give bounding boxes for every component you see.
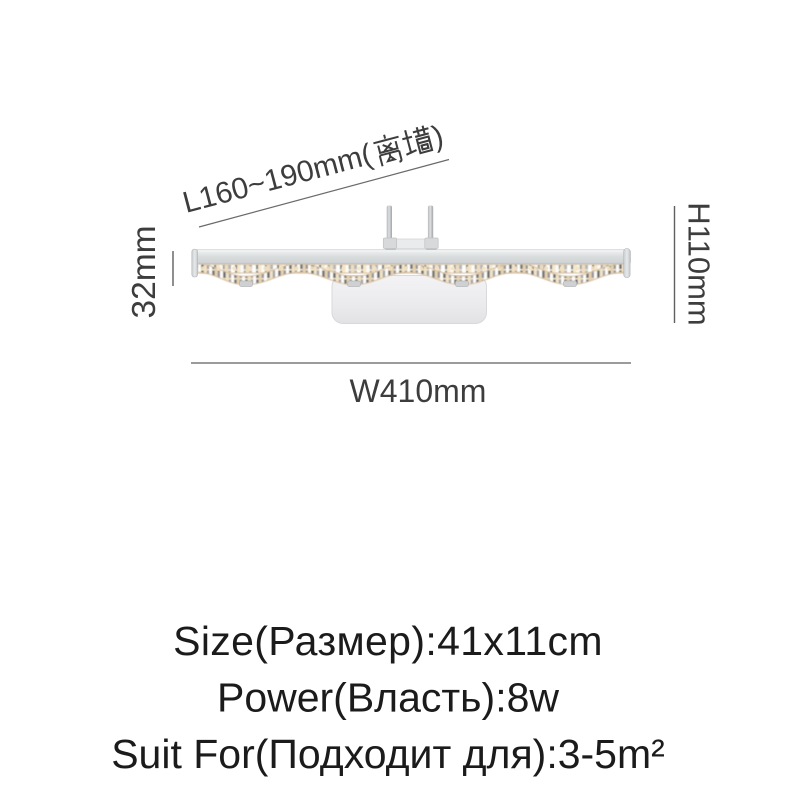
svg-text:32mm: 32mm bbox=[126, 225, 163, 318]
svg-text:Power(Власть):8w: Power(Власть):8w bbox=[217, 675, 559, 721]
svg-text:Size(Размер):41x11cm: Size(Размер):41x11cm bbox=[173, 618, 603, 664]
svg-text:Suit For(Подходит для):3-5m²: Suit For(Подходит для):3-5m² bbox=[111, 731, 665, 777]
svg-text:H110mm: H110mm bbox=[682, 202, 717, 325]
svg-text:W410mm: W410mm bbox=[350, 373, 487, 409]
